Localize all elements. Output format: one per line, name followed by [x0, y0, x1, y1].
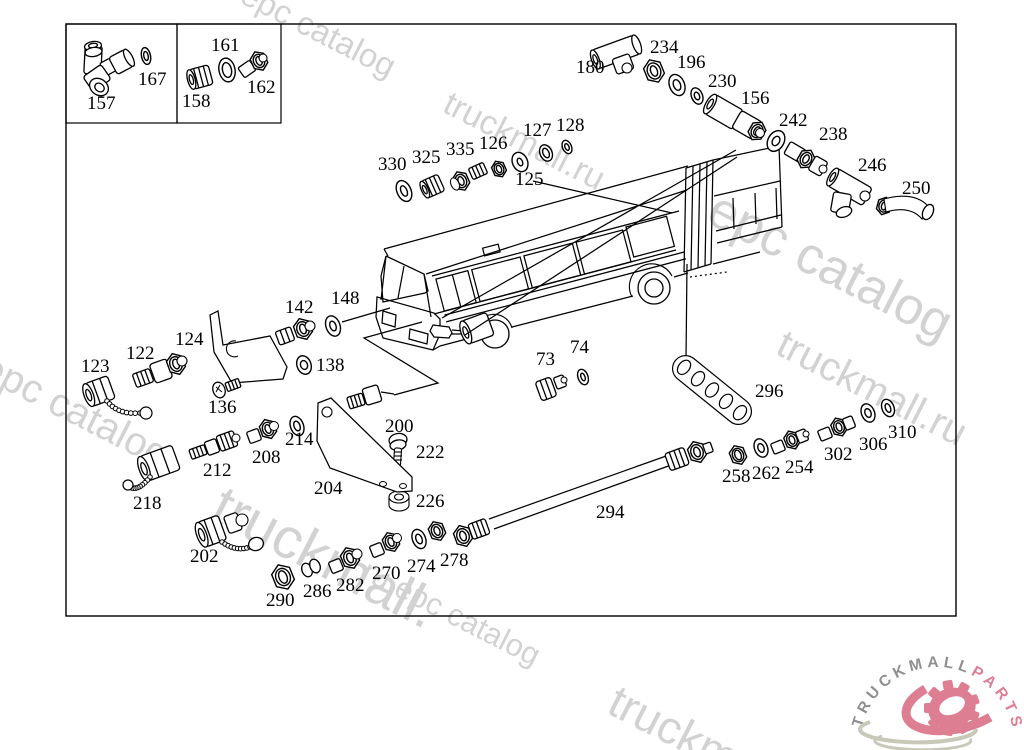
- svg-text:73: 73: [536, 349, 555, 370]
- svg-text:156: 156: [741, 88, 770, 109]
- svg-text:302: 302: [824, 444, 853, 465]
- svg-text:200: 200: [385, 416, 414, 437]
- svg-text:306: 306: [859, 434, 888, 455]
- svg-text:125: 125: [515, 169, 544, 190]
- svg-text:278: 278: [440, 550, 469, 571]
- svg-text:226: 226: [416, 491, 445, 512]
- svg-text:242: 242: [779, 110, 808, 131]
- svg-text:262: 262: [752, 463, 781, 484]
- svg-text:282: 282: [336, 575, 365, 596]
- svg-text:310: 310: [888, 422, 917, 443]
- svg-text:254: 254: [785, 457, 814, 478]
- svg-text:180: 180: [576, 57, 605, 78]
- svg-text:128: 128: [556, 115, 585, 136]
- svg-text:325: 325: [412, 147, 441, 168]
- svg-text:122: 122: [126, 343, 155, 364]
- svg-text:250: 250: [902, 178, 931, 199]
- svg-text:127: 127: [523, 120, 552, 141]
- svg-text:148: 148: [331, 288, 360, 309]
- svg-text:230: 230: [708, 71, 737, 92]
- svg-text:330: 330: [378, 154, 407, 175]
- svg-text:290: 290: [266, 590, 295, 611]
- svg-text:246: 246: [858, 155, 887, 176]
- svg-text:286: 286: [303, 581, 332, 602]
- svg-text:126: 126: [479, 133, 508, 154]
- svg-text:214: 214: [285, 429, 314, 450]
- svg-text:136: 136: [208, 397, 237, 418]
- svg-text:138: 138: [316, 355, 345, 376]
- svg-text:142: 142: [285, 297, 314, 318]
- svg-text:157: 157: [87, 93, 116, 114]
- svg-text:158: 158: [182, 91, 211, 112]
- svg-text:196: 196: [677, 52, 706, 73]
- svg-text:238: 238: [819, 124, 848, 145]
- svg-text:218: 218: [133, 493, 162, 514]
- svg-text:161: 161: [211, 35, 240, 56]
- svg-text:162: 162: [247, 77, 276, 98]
- svg-text:208: 208: [252, 447, 281, 468]
- svg-text:167: 167: [138, 69, 167, 90]
- svg-text:212: 212: [203, 460, 232, 481]
- svg-text:258: 258: [722, 466, 751, 487]
- svg-text:202: 202: [190, 546, 219, 567]
- svg-text:294: 294: [596, 502, 625, 523]
- svg-text:335: 335: [446, 139, 475, 160]
- svg-text:270: 270: [372, 563, 401, 584]
- svg-text:234: 234: [650, 37, 679, 58]
- svg-text:274: 274: [407, 556, 436, 577]
- svg-text:123: 123: [81, 356, 110, 377]
- svg-text:74: 74: [570, 337, 590, 358]
- svg-text:124: 124: [175, 329, 204, 350]
- svg-text:222: 222: [416, 442, 445, 463]
- svg-text:296: 296: [755, 381, 784, 402]
- svg-text:204: 204: [314, 478, 343, 499]
